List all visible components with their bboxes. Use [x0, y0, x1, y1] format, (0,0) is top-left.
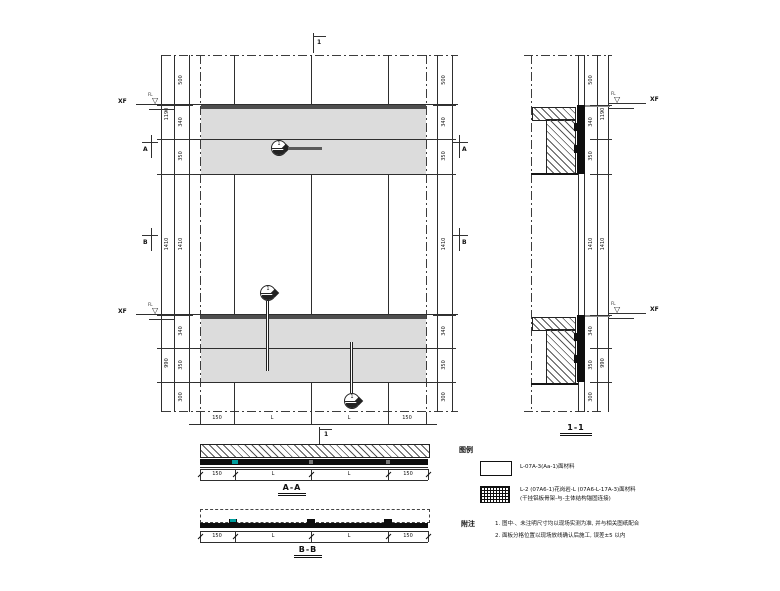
legend-swatch-grid: [480, 486, 510, 503]
dim-label: 990: [164, 353, 170, 373]
concrete-block-hatch: [546, 119, 576, 174]
dim-tick: [433, 139, 456, 140]
clip-marker: [309, 460, 313, 464]
dim-label: 350: [178, 146, 184, 166]
dim-rail: [597, 55, 598, 412]
anchor-fitting: [574, 145, 578, 153]
dim-tick: [157, 139, 193, 140]
dim-label: 150: [207, 471, 227, 477]
dim-tick: [433, 315, 456, 316]
dim-label: L: [263, 471, 283, 477]
dim-label: 1410: [178, 234, 184, 254]
level-triangle-icon: ▽: [614, 306, 620, 314]
panel-section-upper: [577, 105, 585, 174]
dim-label: 990: [600, 353, 606, 373]
grid-line-bottom: [162, 411, 458, 412]
dim-tick: [433, 174, 456, 175]
level-triangle-icon: ▽: [152, 97, 158, 105]
callout-leader: [266, 301, 269, 371]
clip-block: [307, 519, 315, 528]
grid-line: [524, 411, 602, 412]
level-label-xf: XF: [650, 307, 659, 313]
dim-tick: [590, 315, 612, 316]
notes-title: 附注: [461, 520, 475, 528]
legend-title: 图例: [459, 446, 473, 454]
legend-item-text: L-07A-3(Aa-1)面材料: [520, 464, 575, 471]
dim-label: 350: [178, 355, 184, 375]
transom-line: [174, 139, 452, 140]
grid-line: [524, 55, 612, 56]
section-cut-b-line: [459, 228, 460, 251]
section-11-title: 1-1: [560, 423, 592, 436]
panel-backline: [200, 467, 428, 468]
dim-tick: [157, 348, 193, 349]
section-cut-b-label: B: [143, 240, 148, 246]
dim-tick: [234, 412, 235, 424]
section-cut-a-tick: [142, 142, 158, 143]
dim-tick: [590, 348, 612, 349]
dim-label: 340: [441, 321, 447, 341]
level-underline: [149, 319, 174, 320]
slab-soffit-line: [531, 173, 578, 175]
note-line: 2. 面板分格位置以现场放线确认后施工, 误差±5 以内: [495, 533, 625, 540]
level-underline: [149, 109, 174, 110]
level-triangle-icon: ▽: [614, 96, 620, 104]
dim-label: 150: [398, 471, 418, 477]
dim-label: 340: [588, 321, 594, 341]
section-cut-a-label: A: [143, 147, 148, 153]
band-bottom-line: [174, 174, 452, 175]
dim-label: 1190: [600, 104, 606, 124]
dim-tick: [590, 174, 612, 175]
dim-label: 300: [588, 387, 594, 407]
dim-label: 500: [178, 70, 184, 90]
dim-rail: [452, 55, 453, 412]
section-cut-1-label: 1: [317, 40, 321, 46]
level-triangle-icon: ▽: [152, 307, 158, 315]
dim-label: 1410: [600, 234, 606, 254]
anchor-fitting: [574, 355, 578, 363]
legend-item-text: L-2 (07A6-1)花岗岩-L (07A6-L-17A-3)面材料: [520, 487, 636, 494]
section-cut-1-label: 1: [324, 432, 328, 438]
dim-label: 350: [588, 146, 594, 166]
wall-hatch-strip: [200, 444, 430, 458]
section-cut-1-tick: [313, 36, 326, 37]
dim-label: 150: [207, 415, 227, 421]
section-cut-b-line: [151, 228, 152, 251]
legend-item-text: (干挂铝板骨架-与-主体结构锚固连接): [520, 496, 611, 503]
slab-soffit-line: [531, 383, 578, 385]
callout-leader: [350, 342, 353, 393]
dim-tick: [311, 412, 312, 424]
anchor-fitting: [574, 333, 578, 341]
dim-label: 150: [398, 533, 418, 539]
dim-rail: [200, 542, 428, 543]
clip-marker-teal: [230, 519, 236, 522]
cad-drawing-sheet: 500 340 350 1410 340 350 300 1190 1410 9…: [0, 0, 780, 591]
grid-line-right: [426, 55, 427, 412]
clip-marker-teal: [232, 460, 238, 464]
dim-label: 1410: [441, 234, 447, 254]
dim-rail: [200, 480, 428, 481]
dim-rail: [174, 55, 175, 412]
dim-label: 340: [178, 112, 184, 132]
level-label-xf: XF: [650, 97, 659, 103]
clip-block: [384, 519, 392, 528]
dim-label: L: [339, 415, 359, 421]
dim-label: L: [262, 415, 282, 421]
section-cut-b-tick: [142, 235, 158, 236]
callout-sheet-ref: [273, 150, 285, 155]
section-aa-title: A-A: [278, 483, 306, 496]
detail-callout: 1: [344, 393, 364, 409]
dim-label: 1190: [164, 104, 170, 124]
level-strip-lower: [201, 315, 426, 319]
band-bottom-line: [174, 382, 452, 383]
legend-swatch-plain: [480, 461, 512, 476]
section-cut-a-line: [459, 135, 460, 158]
dim-tick: [200, 412, 201, 424]
dim-label: 350: [441, 146, 447, 166]
dim-rail: [189, 55, 190, 412]
detail-callout: 1: [260, 285, 280, 301]
dim-rail: [437, 55, 438, 412]
dim-label: 350: [588, 355, 594, 375]
dim-label: 1410: [164, 234, 170, 254]
dim-label: 1410: [588, 234, 594, 254]
level-underline: [608, 318, 634, 319]
dim-tick: [388, 412, 389, 424]
dim-tick: [157, 174, 193, 175]
section-bb-title: B-B: [294, 545, 322, 558]
dim-tick: [590, 382, 612, 383]
section-cut-a-line: [151, 135, 152, 158]
panel-section-lower: [577, 315, 585, 382]
dim-tick: [433, 105, 456, 106]
dim-tick: [157, 105, 193, 106]
dim-label: 150: [207, 533, 227, 539]
clip-marker: [386, 460, 390, 464]
dim-label: 340: [588, 112, 594, 132]
dim-label: L: [339, 471, 359, 477]
dim-tick: [433, 348, 456, 349]
dim-label: 340: [178, 321, 184, 341]
dim-tick: [157, 315, 193, 316]
dim-label: 150: [397, 415, 417, 421]
dim-label: 500: [588, 70, 594, 90]
dim-tick: [426, 412, 427, 424]
dim-rail: [189, 424, 437, 425]
level-label-xf: XF: [118, 99, 127, 105]
level-label-xf: XF: [118, 309, 127, 315]
dim-label: 350: [441, 355, 447, 375]
dim-label: L: [263, 533, 283, 539]
dim-tick: [157, 382, 193, 383]
callout-sheet-ref: [346, 403, 358, 408]
dim-tick: [590, 139, 612, 140]
note-line: 1. 图中·、未注明尺寸均以现场实测为准, 并与相关图纸配合: [495, 521, 639, 528]
dim-label: L: [339, 533, 359, 539]
transom-line: [174, 348, 452, 349]
callout-sheet-ref: [262, 295, 274, 300]
level-underline: [608, 108, 634, 109]
section-cut-b-tick: [452, 235, 468, 236]
dim-tick: [433, 382, 456, 383]
grid-line-top: [162, 55, 458, 56]
section-cut-a-tick: [452, 142, 468, 143]
level-strip-upper: [201, 105, 426, 109]
section-cut-a-label: A: [462, 147, 467, 153]
dim-label: 500: [441, 70, 447, 90]
dim-label: 300: [178, 387, 184, 407]
callout-leader: [288, 147, 322, 150]
section-cut-1-tick: [319, 429, 332, 430]
concrete-block-hatch: [546, 329, 576, 384]
section-cut-b-label: B: [462, 240, 467, 246]
anchor-fitting: [574, 123, 578, 131]
dim-label: 300: [441, 387, 447, 407]
dim-label: 340: [441, 112, 447, 132]
